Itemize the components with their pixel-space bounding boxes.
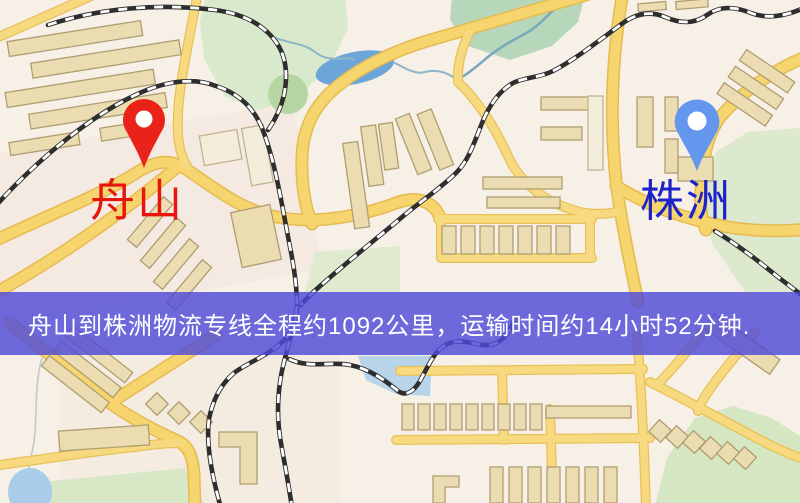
destination-pin-shape [675, 100, 720, 171]
origin-pin-shape [123, 99, 165, 168]
destination-label: 株洲 [640, 180, 732, 224]
route-info-banner: 舟山到株洲物流专线全程约1092公里，运输时间约14小时52分钟. [0, 292, 800, 355]
origin-label: 舟山 [90, 179, 184, 224]
origin-pin-icon [116, 94, 172, 177]
destination-pin-icon [667, 95, 727, 180]
map-image: 舟山 株洲 舟山到株洲物流专线全程约1092公里，运输时间约14小时52分钟. [0, 0, 800, 503]
basemap [0, 0, 800, 503]
route-info-text: 舟山到株洲物流专线全程约1092公里，运输时间约14小时52分钟. [28, 306, 750, 341]
